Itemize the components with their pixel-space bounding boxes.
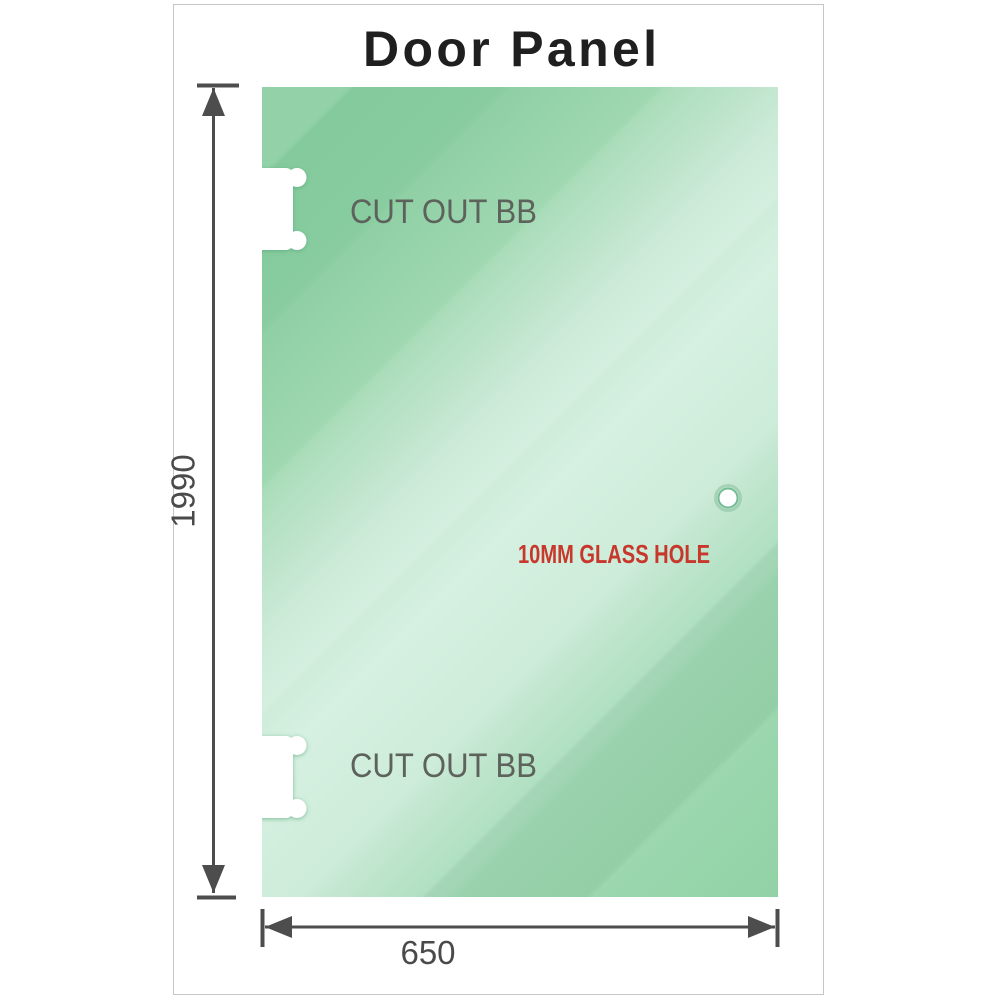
door-panel-diagram-page: Door Panel CUT OUT BB CUT OUT BB [0, 0, 1000, 1000]
width-dim-arrow-right [748, 916, 775, 938]
hinge-cutout-bottom-lobe-upper [288, 736, 307, 755]
height-dim-value: 1990 [165, 454, 202, 527]
width-dimension: 650 [263, 909, 778, 971]
cutout-bottom-label: CUT OUT BB [350, 747, 537, 785]
height-dim-arrow-down [202, 865, 225, 893]
glass-hole-label: 10MM GLASS HOLE [518, 539, 710, 569]
hinge-cutout-top-lobe-upper [288, 168, 307, 187]
glass-hole-circle [719, 489, 738, 508]
glass-hole [716, 486, 741, 511]
hinge-cutout-bottom-lobe-lower [288, 799, 307, 818]
page-title: Door Panel [363, 21, 657, 77]
height-dim-arrow-up [202, 88, 225, 116]
hinge-cutout-top-notch [254, 168, 293, 250]
door-panel-diagram: Door Panel CUT OUT BB CUT OUT BB [0, 0, 1000, 1000]
hinge-cutout-bottom-notch [254, 736, 293, 818]
cutout-top-label: CUT OUT BB [350, 193, 537, 231]
height-dimension: 1990 [165, 86, 240, 898]
hinge-cutout-top-lobe-lower [288, 231, 307, 250]
width-dim-arrow-left [265, 916, 292, 938]
width-dim-value: 650 [400, 934, 455, 971]
